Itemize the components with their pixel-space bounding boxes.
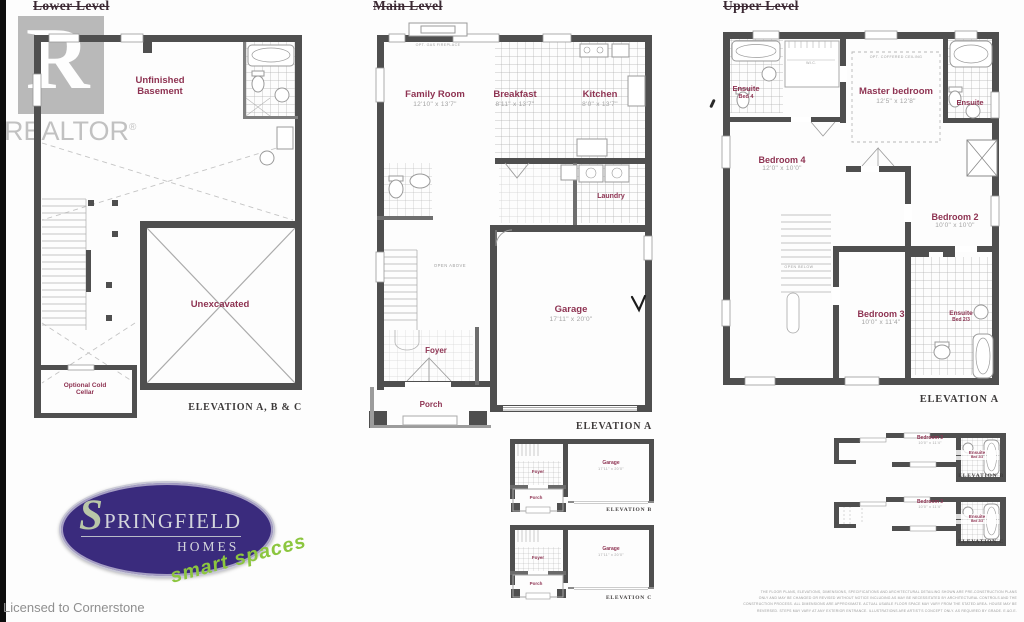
upper-level-drawing	[715, 0, 1015, 415]
upper-elevation-label: ELEVATION A	[897, 395, 999, 406]
unexcavated-label: Unexcavated	[170, 300, 270, 311]
breakfast-label: Breakfast	[477, 90, 553, 101]
logo-name-text: PRINGFIELD	[104, 511, 242, 532]
wic-label: W.I.C.	[793, 62, 829, 66]
main-level-title: Main Level	[373, 0, 443, 14]
lower-ceiling-dashes	[42, 143, 293, 383]
bedroom2-dims: 10'0" x 10'0"	[915, 223, 995, 230]
fireplace-note: OPT. GAS FIREPLACE	[403, 44, 473, 48]
variant-rc-elevation-label: ELEVATION C	[932, 540, 1004, 546]
main-level-drawing	[365, 0, 660, 438]
upper-door-swings	[811, 122, 894, 166]
variant-rc-bedroom3-dims: 10'0" x 11'4"	[900, 506, 960, 510]
main-elevation-label: ELEVATION A	[550, 422, 652, 432]
variant-rb-bedroom3-dims: 10'0" x 11'4"	[900, 442, 960, 446]
variant-c-garage-label: Garage	[583, 547, 639, 553]
ensuite23-sub: Bed 2/3	[933, 318, 989, 324]
variant-c-elevation-label: ELEVATION C	[586, 596, 652, 602]
kitchen-label: Kitchen	[563, 90, 637, 101]
bedroom3-dims: 10'0" x 11'4"	[841, 320, 921, 327]
master-bedroom-dims: 12'5" x 12'8"	[846, 99, 946, 106]
lower-level-plan: Lower Level Unfinished Basement Unexcava…	[30, 0, 310, 424]
variant-b-garage-label: Garage	[583, 461, 639, 467]
kitchen-dims: 8'0" x 13'7"	[563, 102, 637, 109]
variant-c-foyer-label: Foyer	[520, 555, 556, 560]
variant-c-porch-label: Porch	[518, 581, 554, 586]
family-room-label: Family Room	[385, 90, 485, 101]
foyer-label: Foyer	[406, 346, 466, 355]
pen-checkmark	[632, 296, 645, 310]
lower-elevation-label: ELEVATION A, B & C	[180, 403, 302, 413]
cold-cellar-label: Optional Cold Cellar	[63, 382, 107, 397]
variant-plan-elevation-c: Foyer Porch Garage 17'11" x 20'0" ELEVAT…	[508, 523, 656, 605]
ensuite-right-label: Ensuite	[943, 99, 997, 108]
variant-c-garage-dims: 17'11" x 20'0"	[583, 554, 639, 558]
lower-level-drawing	[30, 0, 310, 424]
disclaimer-text: THE FLOOR PLANS, ELEVATIONS, DIMENSIONS,…	[705, 589, 1017, 614]
laundry-label: Laundry	[581, 193, 641, 201]
bedroom3-label: Bedroom 3	[841, 309, 921, 319]
garage-dims: 17'11" x 20'0"	[531, 317, 611, 324]
unfinished-basement-label: Unfinished Basement	[120, 76, 200, 98]
variant-b-garage-dims: 17'11" x 20'0"	[583, 468, 639, 472]
open-below-label: OPEN BELOW	[771, 266, 827, 270]
ensuite-bed4-label: Ensuite	[720, 85, 772, 94]
variant-b-porch-label: Porch	[518, 495, 554, 500]
variant-rc-ensuite-sub: Bed 2/3	[955, 520, 999, 524]
variant-b-elevation-label: ELEVATION B	[586, 508, 652, 514]
bedroom2-label: Bedroom 2	[915, 212, 995, 222]
porch-label: Porch	[401, 400, 461, 409]
variant-rb-ensuite-sub: Bed 2/3	[955, 456, 999, 460]
variant-plan-elevation-b: Foyer Porch Garage 17'11" x 20'0" ELEVAT…	[508, 437, 656, 519]
main-level-plan: Main Level OPT. GAS FIREPLACE Family Roo…	[365, 0, 660, 438]
springfield-homes-logo: S PRINGFIELD HOMES smart spaces	[55, 478, 289, 610]
bedroom4-label: Bedroom 4	[742, 155, 822, 165]
upper-level-plan: Upper Level Ensuite Bed 4 W.I.C. OPT. CO…	[715, 0, 1015, 415]
garage-label: Garage	[531, 305, 611, 316]
logo-letter-s: S	[79, 494, 103, 537]
variant-b-foyer-label: Foyer	[520, 469, 556, 474]
open-above-label: OPEN ABOVE	[418, 264, 482, 269]
logo-divider	[81, 536, 241, 537]
bedroom4-dims: 12'0" x 10'0"	[742, 166, 822, 173]
variant-rb-elevation-label: ELEVATION B	[932, 474, 1004, 480]
disclaimer-line: CONSTRUCTION PROCESS. ALL DIMENSIONS ARE…	[705, 601, 1017, 607]
upper-stairs	[781, 215, 831, 333]
breakfast-dims: 8'11" x 13'7"	[477, 102, 553, 109]
family-room-dims: 12'10" x 13'7"	[385, 102, 485, 109]
variant-c-drawing	[508, 523, 656, 605]
coffered-label: OPT. COFFERED CEILING	[856, 56, 936, 60]
lower-stairs	[42, 199, 86, 330]
bedroom3-variant-elevation-b: Bedroom 3 10'0" x 11'4" Ensuite Bed 2/3 …	[832, 430, 1010, 486]
ensuite-bed4-sub: Bed 4	[720, 94, 772, 100]
disclaimer-line: REVERSED. STEPS MAY VARY AT ANY EXTERIOR…	[705, 608, 1017, 614]
floorplan-sheet: R REALTOR®	[0, 0, 1024, 622]
master-bedroom-label: Master bedroom	[846, 87, 946, 98]
bedroom3-variant-elevation-c: Bedroom 3 10'0" x 11'4" Ensuite Bed 2/3 …	[832, 494, 1010, 550]
licensed-to-text: Licensed to Cornerstone	[3, 600, 145, 615]
upper-level-title: Upper Level	[723, 0, 799, 14]
lower-level-title: Lower Level	[33, 0, 110, 14]
